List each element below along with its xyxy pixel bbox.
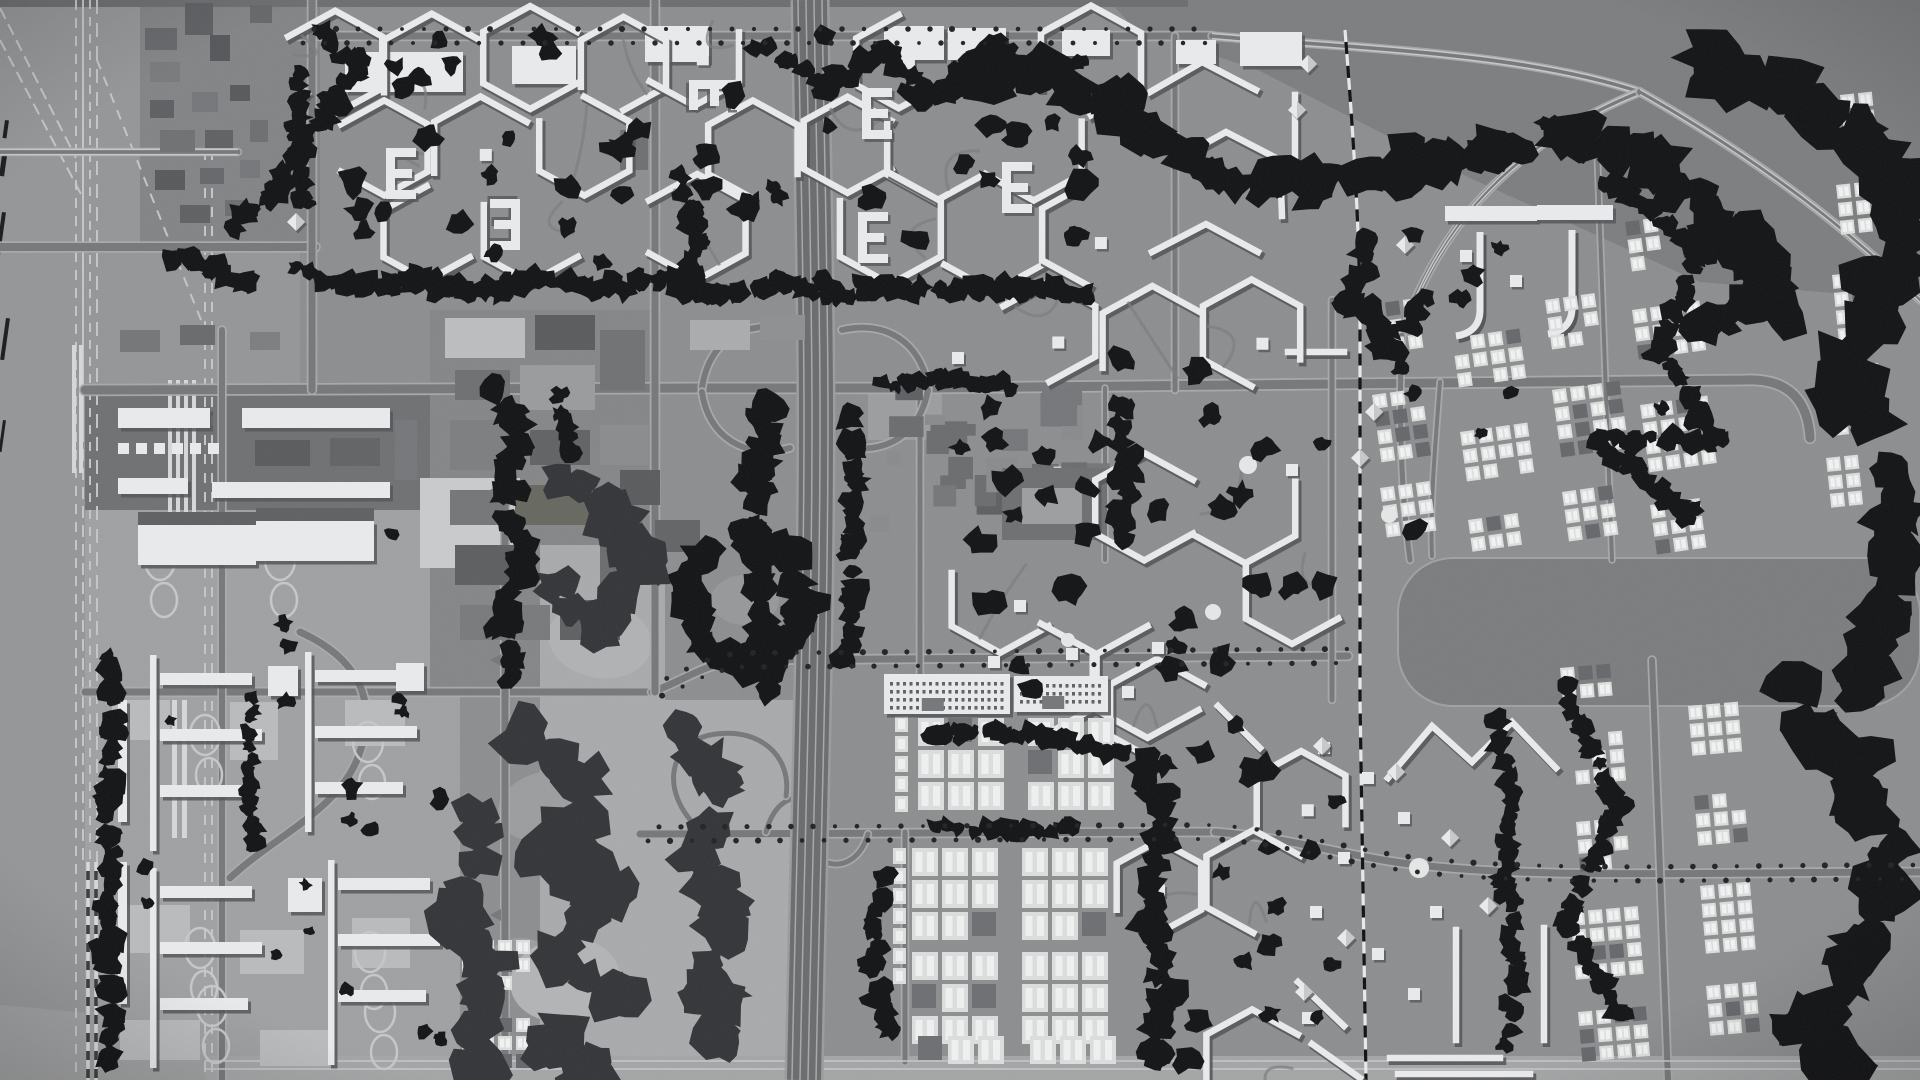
aerial-model-photo (0, 0, 1920, 1080)
photo-effects-layer (0, 0, 1920, 1080)
masterplan-map-canvas (0, 0, 1920, 1080)
